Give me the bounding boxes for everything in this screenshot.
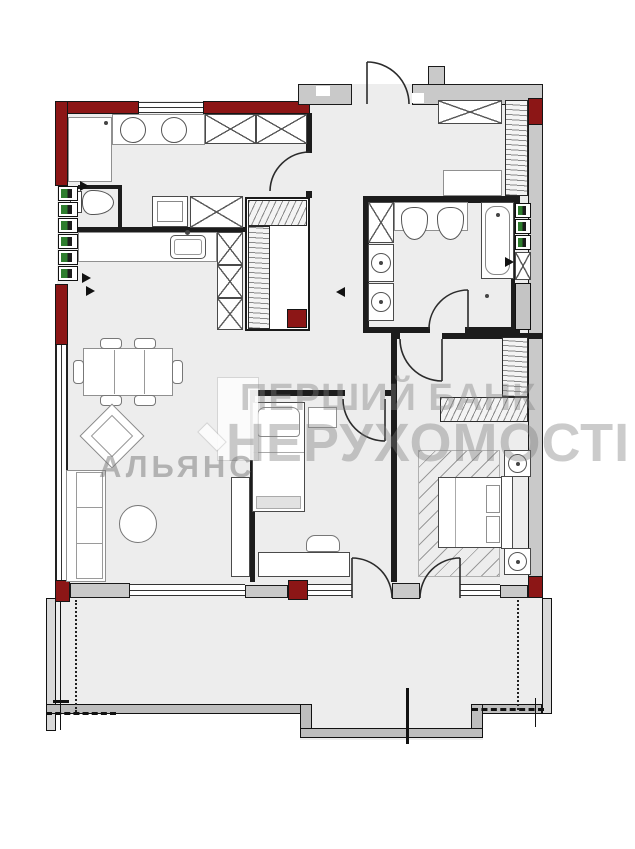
dryer-drum [371, 292, 391, 312]
coffee-table-round [119, 505, 157, 543]
wall-bottom-frame-2 [245, 585, 288, 598]
railing-dotted-left [75, 600, 77, 712]
watermark-brand: АЛЬЯНС [99, 451, 256, 482]
railing-dotted-right [517, 600, 519, 710]
wall-right-red-bottom [528, 576, 543, 598]
riser-box [58, 202, 78, 217]
master-headboard [501, 476, 513, 549]
kitchen-cabinet-x-1 [205, 114, 256, 144]
balcony-parapet-right [542, 598, 552, 714]
riser-valve-icon [61, 253, 75, 262]
fridge-hinge-dot [104, 121, 108, 125]
kitchen-hob-round [161, 117, 187, 143]
drum-dot [379, 261, 383, 265]
hall-storage-x [190, 196, 243, 228]
dining-chair [100, 338, 122, 349]
sofa-cushion [76, 543, 103, 579]
bathroom-arrow-icon [505, 257, 514, 267]
wall-left-red-lower [55, 284, 68, 345]
riser-box [515, 219, 531, 234]
kitchen-cabinet-x-2 [256, 114, 307, 144]
wall-right [528, 98, 543, 598]
railing-tick-left [53, 700, 69, 703]
balcony-floor [46, 598, 552, 712]
riser-arrow-icon [80, 181, 89, 191]
service-shaft [515, 283, 531, 330]
riser-valve-icon [518, 222, 528, 231]
wall-wc-right [118, 189, 122, 229]
bathroom-cabinet-x [368, 202, 394, 243]
wall-top-red-right [203, 101, 310, 114]
railing-line-right [535, 698, 536, 727]
riser-valve-icon [61, 221, 75, 230]
wall-notch-left [316, 86, 330, 96]
lamp-icon [508, 552, 527, 571]
wall-bottom-red-mid [288, 580, 308, 600]
riser-arrow-icon [82, 273, 91, 283]
dining-chair [134, 338, 156, 349]
sofa [66, 470, 106, 582]
riser-box [58, 234, 78, 249]
master-pillow-2 [486, 516, 500, 543]
balcony-parapet-notch-bottom [300, 728, 483, 738]
pantry-shelf-hatch-top [248, 200, 307, 226]
table-leaf-line [114, 350, 115, 394]
bedroom2-desk-chair [306, 535, 340, 552]
pantry-shelf-hatch-left [248, 226, 270, 329]
washing-machine [368, 244, 394, 282]
kitchen-sink-round [120, 117, 146, 143]
riser-valve-icon [518, 238, 528, 247]
washer-drum [371, 253, 391, 273]
dining-table [83, 348, 173, 396]
wall-notch-right [412, 93, 424, 103]
table-leaf-line [144, 350, 145, 394]
riser-box [58, 266, 78, 281]
wall-left-red-upper [55, 101, 68, 186]
riser-box [58, 218, 78, 233]
watermark-line1: ПЕРШИЙ БАНК [240, 379, 536, 417]
wall-right-red-top [528, 98, 543, 125]
wall-top-stub [428, 66, 445, 85]
riser-valve-icon [61, 205, 75, 214]
master-window [460, 584, 500, 596]
drum-dot [379, 300, 383, 304]
blanket-fold-line [455, 478, 456, 547]
dryer-machine [368, 283, 394, 321]
entry-cabinet-x [438, 100, 502, 124]
riser-arrow-icon [86, 286, 95, 296]
kitchen-tall-unit-x-2 [217, 265, 243, 298]
dimension-dashes-left [46, 712, 116, 715]
dining-chair [172, 360, 183, 384]
entry-bench [443, 170, 502, 196]
kitchen-tall-unit-x-3 [217, 298, 243, 330]
wall-bottom-frame-1 [70, 583, 130, 598]
fridge [68, 117, 112, 182]
sink-basin [174, 239, 202, 255]
railing-line-left [60, 600, 61, 730]
bedroom2-foot-throw [256, 496, 301, 509]
nightstand-lamp-bottom [504, 548, 531, 575]
shaft-x-box [515, 252, 531, 280]
bedroom2-desk [258, 552, 350, 577]
master-pillow-1 [486, 485, 500, 513]
bathroom-floor-dot [485, 294, 489, 298]
wall-bottom-red-left [55, 580, 70, 602]
bathtub-drain-dot [496, 213, 500, 217]
kitchen-window [139, 102, 203, 113]
entry-wardrobe-hatch [505, 100, 528, 196]
riser-box [515, 235, 531, 250]
appliance-panel [157, 201, 183, 222]
sofa-cushion [76, 507, 103, 543]
riser-box [58, 186, 78, 201]
wall-bottom-frame-3 [500, 585, 528, 598]
riser-valve-icon [61, 237, 75, 246]
riser-valve-icon [518, 206, 528, 215]
dining-chair [134, 395, 156, 406]
boiler-appliance [152, 196, 188, 227]
watermark-line2: НЕРУХОМОСТІ [226, 416, 630, 470]
tv-cabinet [231, 477, 250, 577]
living-room-window [130, 584, 245, 596]
kitchen-sink [170, 235, 206, 259]
bedroom2-window [308, 584, 352, 596]
corridor-arrow-icon [336, 287, 345, 297]
riser-valve-icon [61, 269, 75, 278]
riser-valve-icon [61, 189, 75, 198]
riser-box [515, 203, 531, 218]
riser-box [58, 250, 78, 265]
lamp-dot [516, 560, 520, 564]
dimension-dashes-right [472, 708, 544, 711]
kitchen-faucet-dot [185, 230, 190, 235]
balcony-mullion-line [406, 688, 409, 744]
apartment-floor-plan: ПЕРШИЙ БАНК НЕРУХОМОСТІ АЛЬЯНС [0, 0, 635, 849]
pantry-red-column [287, 309, 307, 328]
kitchen-tall-unit-x-1 [217, 232, 243, 265]
wall-bottom-pier [392, 583, 420, 599]
dining-chair [73, 360, 84, 384]
